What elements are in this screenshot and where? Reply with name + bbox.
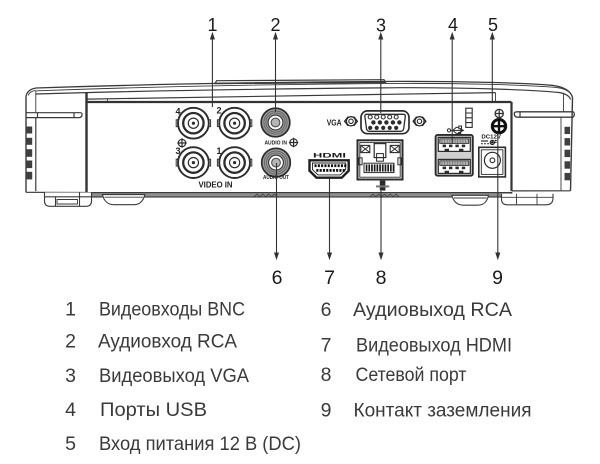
svg-text:Видеовыход VGA: Видеовыход VGA (99, 365, 249, 387)
svg-text:4: 4 (176, 106, 181, 116)
svg-text:2: 2 (65, 331, 76, 353)
svg-text:6: 6 (272, 267, 283, 289)
svg-text:9: 9 (321, 399, 332, 421)
svg-text:1: 1 (217, 146, 222, 156)
svg-text:3: 3 (376, 15, 386, 35)
svg-text:VIDEO IN: VIDEO IN (199, 181, 233, 190)
svg-text:2: 2 (270, 15, 280, 35)
svg-text:4: 4 (65, 399, 76, 421)
svg-text:5: 5 (488, 15, 498, 35)
svg-text:4: 4 (448, 15, 458, 35)
svg-text:VGA: VGA (327, 119, 342, 128)
svg-text:5: 5 (65, 433, 76, 455)
svg-text:Видеовыход HDMI: Видеовыход HDMI (356, 335, 512, 357)
svg-text:8: 8 (321, 364, 332, 386)
svg-text:1: 1 (65, 298, 76, 320)
svg-text:2: 2 (217, 106, 222, 116)
svg-text:9: 9 (492, 267, 503, 289)
svg-text:3: 3 (65, 365, 76, 387)
svg-text:7: 7 (324, 267, 335, 289)
svg-text:AUDIO IN: AUDIO IN (264, 140, 287, 146)
svg-text:Контакт заземления: Контакт заземления (354, 399, 532, 421)
svg-text:6: 6 (321, 299, 332, 321)
svg-text:7: 7 (321, 335, 332, 357)
svg-text:Вход питания 12 В (DC): Вход питания 12 В (DC) (99, 433, 301, 455)
svg-text:8: 8 (376, 267, 387, 289)
svg-text:Порты USB: Порты USB (100, 399, 207, 421)
svg-text:Аудиовход RCA: Аудиовход RCA (98, 331, 237, 353)
svg-text:HDMI: HDMI (313, 152, 346, 159)
svg-text:Сетевой порт: Сетевой порт (356, 364, 467, 386)
svg-text:Аудиовыход RCA: Аудиовыход RCA (353, 299, 512, 321)
svg-text:3: 3 (176, 146, 181, 156)
svg-text:1: 1 (207, 15, 217, 35)
svg-text:Видеовходы BNC: Видеовходы BNC (99, 298, 245, 320)
